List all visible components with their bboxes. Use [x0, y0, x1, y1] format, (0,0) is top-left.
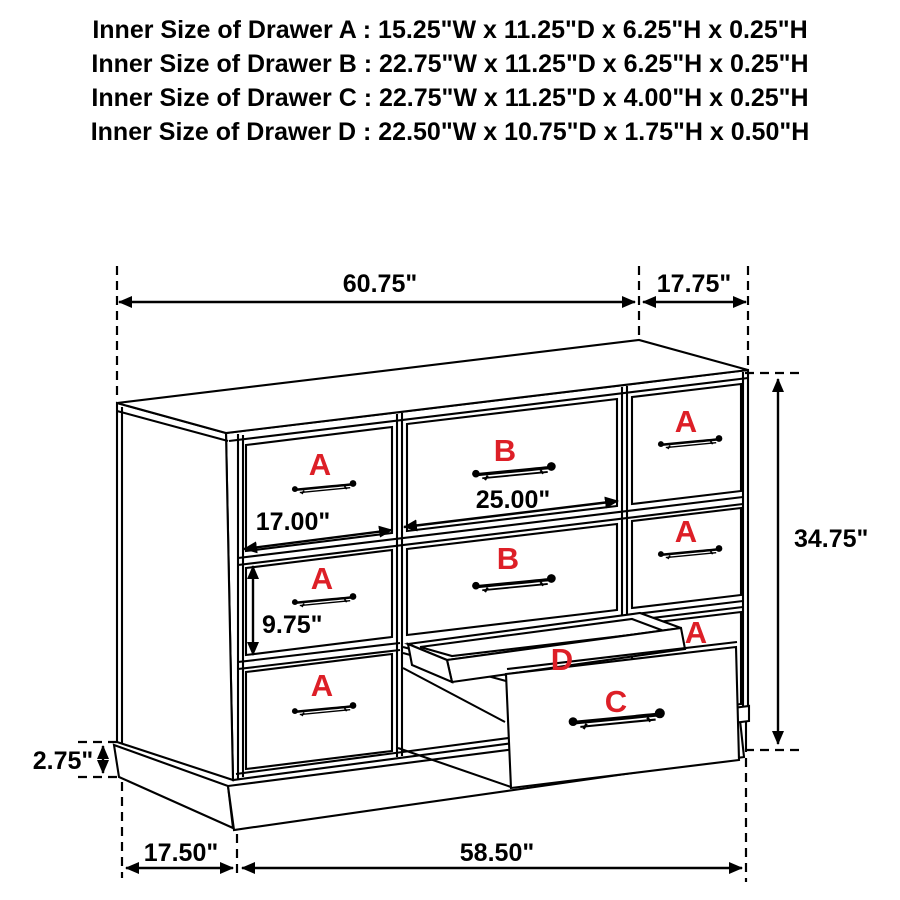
label-drawer-b-2: B: [497, 541, 519, 576]
label-drawer-c: C: [605, 684, 627, 719]
left-side-panel: [117, 403, 233, 780]
dim-top-width: 60.75": [343, 270, 417, 298]
label-tray-d: D: [551, 642, 573, 677]
dim-a-drawer-width: 17.00": [256, 508, 330, 536]
furniture-dimension-diagram: Inner Size of Drawer A : 15.25"W x 11.25…: [0, 0, 900, 900]
label-drawer-a-left-2: A: [311, 561, 333, 596]
dim-base-front-width: 58.50": [460, 839, 534, 867]
label-drawer-a-right-2: A: [675, 514, 697, 549]
dim-overall-height: 34.75": [794, 525, 868, 553]
label-drawer-b-1: B: [494, 433, 516, 468]
dim-b-drawer-width: 25.00": [476, 486, 550, 514]
drawer-right-1: [632, 384, 741, 504]
dresser-line-drawing: A A A B B A A A D C: [0, 0, 900, 900]
label-drawer-a-left-3: A: [311, 668, 333, 703]
dim-a-drawer-height: 9.75": [262, 611, 323, 639]
label-drawer-a-left-1: A: [309, 447, 331, 482]
dim-base-side-depth: 17.50": [144, 839, 218, 867]
label-drawer-a-right-3: A: [685, 615, 707, 650]
dim-base-height: 2.75": [33, 747, 94, 775]
dim-top-depth: 17.75": [657, 270, 731, 298]
label-drawer-a-right-1: A: [675, 404, 697, 439]
